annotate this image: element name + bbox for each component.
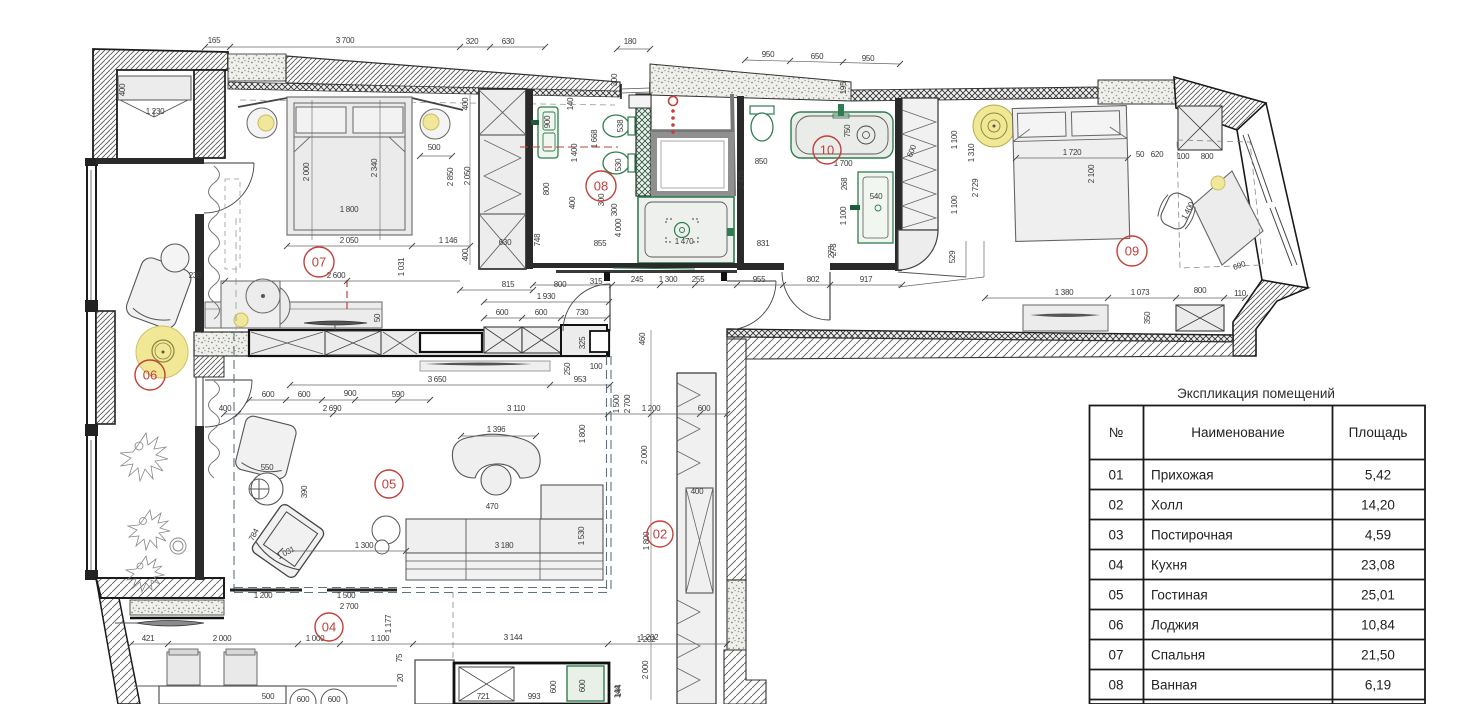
svg-text:4,59: 4,59 [1365, 528, 1391, 543]
svg-text:550: 550 [261, 463, 274, 472]
svg-text:750: 750 [843, 124, 852, 137]
svg-text:1 100: 1 100 [950, 130, 959, 149]
svg-text:320: 320 [466, 37, 479, 46]
svg-text:3 180: 3 180 [495, 541, 514, 550]
svg-text:273: 273 [829, 243, 838, 256]
svg-text:1 200: 1 200 [642, 404, 661, 413]
svg-text:2 050: 2 050 [463, 166, 472, 185]
svg-text:1 202: 1 202 [640, 633, 659, 642]
svg-text:245: 245 [631, 275, 644, 284]
svg-text:255: 255 [692, 275, 705, 284]
svg-text:540: 540 [870, 192, 883, 201]
svg-text:110: 110 [1234, 289, 1247, 298]
svg-text:400: 400 [461, 248, 470, 261]
svg-text:850: 850 [755, 157, 768, 166]
svg-text:538: 538 [616, 119, 625, 132]
svg-text:2 478: 2 478 [737, 170, 746, 189]
svg-text:2 000: 2 000 [302, 162, 311, 181]
svg-text:300: 300 [610, 73, 619, 86]
svg-text:620: 620 [1151, 150, 1164, 159]
svg-text:2 340: 2 340 [370, 158, 379, 177]
svg-text:800: 800 [1201, 152, 1214, 161]
svg-text:05: 05 [382, 477, 396, 492]
svg-text:1 310: 1 310 [967, 143, 976, 162]
svg-text:3 700: 3 700 [336, 36, 355, 45]
svg-text:1 500: 1 500 [337, 591, 356, 600]
svg-text:300: 300 [597, 193, 606, 206]
svg-text:07: 07 [312, 255, 326, 270]
svg-text:400: 400 [568, 196, 577, 209]
svg-text:630: 630 [502, 37, 515, 46]
svg-text:Гостиная: Гостиная [1151, 588, 1208, 603]
svg-text:Наименование: Наименование [1191, 425, 1285, 440]
svg-text:600: 600 [298, 390, 311, 399]
svg-text:230: 230 [189, 271, 202, 280]
svg-text:815: 815 [502, 280, 515, 289]
svg-text:07: 07 [1108, 648, 1123, 663]
svg-text:421: 421 [142, 634, 155, 643]
svg-text:04: 04 [1108, 558, 1124, 573]
svg-text:01: 01 [1108, 468, 1123, 483]
svg-text:600: 600 [549, 680, 558, 693]
svg-text:400: 400 [118, 83, 127, 96]
svg-text:955: 955 [753, 275, 766, 284]
svg-text:600: 600 [496, 308, 509, 317]
svg-text:900: 900 [543, 115, 552, 128]
svg-text:600: 600 [262, 390, 275, 399]
svg-text:100: 100 [1177, 152, 1190, 161]
svg-text:1 380: 1 380 [1055, 288, 1074, 297]
svg-text:75: 75 [395, 653, 404, 662]
svg-text:800: 800 [1194, 286, 1207, 295]
svg-text:09: 09 [1125, 244, 1139, 259]
svg-text:1 530: 1 530 [577, 526, 586, 545]
svg-text:Прихожая: Прихожая [1151, 468, 1214, 483]
svg-text:1 230: 1 230 [146, 107, 165, 116]
svg-text:144: 144 [613, 685, 622, 698]
svg-text:268: 268 [840, 177, 849, 190]
svg-text:06: 06 [1108, 618, 1123, 633]
svg-text:Площадь: Площадь [1349, 425, 1408, 440]
svg-text:2 000: 2 000 [640, 445, 649, 464]
svg-text:2 700: 2 700 [340, 602, 359, 611]
svg-text:1 200: 1 200 [254, 591, 273, 600]
svg-text:630: 630 [499, 238, 512, 247]
svg-text:500: 500 [262, 692, 275, 701]
svg-text:1 031: 1 031 [397, 257, 406, 276]
svg-text:2 729: 2 729 [971, 178, 980, 197]
svg-text:1 500: 1 500 [612, 394, 621, 413]
svg-text:400: 400 [691, 487, 704, 496]
svg-text:1 100: 1 100 [839, 206, 848, 225]
svg-text:2 850: 2 850 [446, 167, 455, 186]
svg-text:400: 400 [219, 404, 232, 413]
svg-text:1 146: 1 146 [439, 236, 458, 245]
svg-text:2 700: 2 700 [623, 394, 632, 413]
svg-text:470: 470 [486, 502, 499, 511]
svg-text:1 668: 1 668 [590, 129, 599, 148]
svg-text:690: 690 [1232, 259, 1248, 272]
svg-text:10,84: 10,84 [1361, 618, 1395, 633]
svg-text:721: 721 [477, 692, 490, 701]
svg-text:20: 20 [396, 673, 405, 682]
svg-text:08: 08 [1108, 678, 1123, 693]
svg-text:05: 05 [1108, 588, 1123, 603]
svg-text:802: 802 [807, 275, 820, 284]
svg-text:1 720: 1 720 [1063, 148, 1082, 157]
svg-text:993: 993 [528, 692, 541, 701]
svg-text:3 144: 3 144 [504, 633, 523, 642]
svg-text:2 000: 2 000 [641, 660, 650, 679]
svg-text:195: 195 [839, 81, 848, 94]
svg-text:600: 600 [328, 695, 341, 704]
svg-text:460: 460 [638, 332, 647, 345]
svg-text:600: 600 [698, 404, 711, 413]
svg-text:917: 917 [860, 275, 873, 284]
svg-text:2 690: 2 690 [323, 404, 342, 413]
svg-text:Холл: Холл [1151, 498, 1183, 513]
svg-text:165: 165 [208, 36, 221, 45]
svg-text:530: 530 [614, 158, 623, 171]
svg-text:4 000: 4 000 [614, 218, 623, 237]
svg-text:600: 600 [297, 695, 310, 704]
svg-text:02: 02 [1108, 498, 1123, 513]
svg-text:6,19: 6,19 [1365, 678, 1391, 693]
svg-text:250: 250 [563, 362, 572, 375]
svg-text:180: 180 [624, 37, 637, 46]
svg-text:1 400: 1 400 [570, 143, 579, 162]
svg-text:14,20: 14,20 [1361, 498, 1395, 513]
svg-text:Лоджия: Лоджия [1151, 618, 1199, 633]
svg-text:600: 600 [535, 308, 548, 317]
svg-text:390: 390 [300, 485, 309, 498]
svg-text:Постирочная: Постирочная [1151, 528, 1233, 543]
svg-text:350: 350 [1143, 311, 1152, 324]
svg-text:400: 400 [461, 97, 470, 110]
svg-text:100: 100 [590, 362, 603, 371]
svg-text:140: 140 [566, 97, 575, 110]
svg-text:1 300: 1 300 [355, 541, 374, 550]
svg-text:1 800: 1 800 [340, 205, 359, 214]
svg-text:1 177: 1 177 [384, 614, 393, 633]
svg-text:25,01: 25,01 [1361, 588, 1395, 603]
svg-text:1 100: 1 100 [371, 634, 390, 643]
svg-text:2 000: 2 000 [213, 634, 232, 643]
svg-text:730: 730 [576, 308, 589, 317]
svg-text:2 050: 2 050 [340, 236, 359, 245]
svg-text:600: 600 [578, 679, 587, 692]
svg-text:953: 953 [574, 375, 587, 384]
svg-text:3 110: 3 110 [507, 404, 526, 413]
svg-text:529: 529 [948, 250, 957, 263]
svg-text:5,42: 5,42 [1365, 468, 1391, 483]
svg-text:590: 590 [392, 390, 405, 399]
svg-text:2 100: 2 100 [1087, 164, 1096, 183]
svg-text:50: 50 [373, 313, 382, 322]
svg-text:1 930: 1 930 [537, 292, 556, 301]
svg-text:325: 325 [578, 336, 587, 349]
svg-text:800: 800 [554, 280, 567, 289]
svg-text:1 100: 1 100 [950, 195, 959, 214]
svg-text:950: 950 [762, 50, 775, 59]
svg-text:1 800: 1 800 [578, 424, 587, 443]
svg-text:315: 315 [590, 277, 603, 286]
svg-text:950: 950 [862, 54, 875, 63]
svg-text:02: 02 [653, 527, 667, 542]
svg-text:Ванная: Ванная [1151, 678, 1197, 693]
svg-text:Кухня: Кухня [1151, 558, 1187, 573]
svg-text:900: 900 [344, 389, 357, 398]
svg-text:1 396: 1 396 [487, 425, 506, 434]
svg-text:748: 748 [533, 233, 542, 246]
svg-text:800: 800 [542, 182, 551, 195]
svg-text:Спальня: Спальня [1151, 648, 1205, 663]
svg-text:650: 650 [811, 52, 824, 61]
svg-text:06: 06 [143, 368, 157, 383]
svg-text:23,08: 23,08 [1361, 558, 1395, 573]
svg-text:3 650: 3 650 [428, 375, 447, 384]
svg-text:10: 10 [820, 143, 834, 158]
svg-text:04: 04 [322, 620, 336, 635]
svg-text:500: 500 [428, 143, 441, 152]
svg-text:300: 300 [610, 203, 619, 216]
svg-text:1 300: 1 300 [659, 275, 678, 284]
svg-text:Экспликация помещений: Экспликация помещений [1177, 386, 1335, 401]
svg-text:831: 831 [757, 239, 770, 248]
svg-text:№: № [1109, 425, 1123, 440]
svg-text:03: 03 [1108, 528, 1123, 543]
svg-text:08: 08 [594, 179, 608, 194]
svg-text:1 470: 1 470 [675, 237, 694, 246]
svg-text:855: 855 [594, 239, 607, 248]
svg-text:50: 50 [1136, 150, 1145, 159]
svg-text:1 073: 1 073 [1131, 288, 1150, 297]
svg-text:21,50: 21,50 [1361, 648, 1395, 663]
